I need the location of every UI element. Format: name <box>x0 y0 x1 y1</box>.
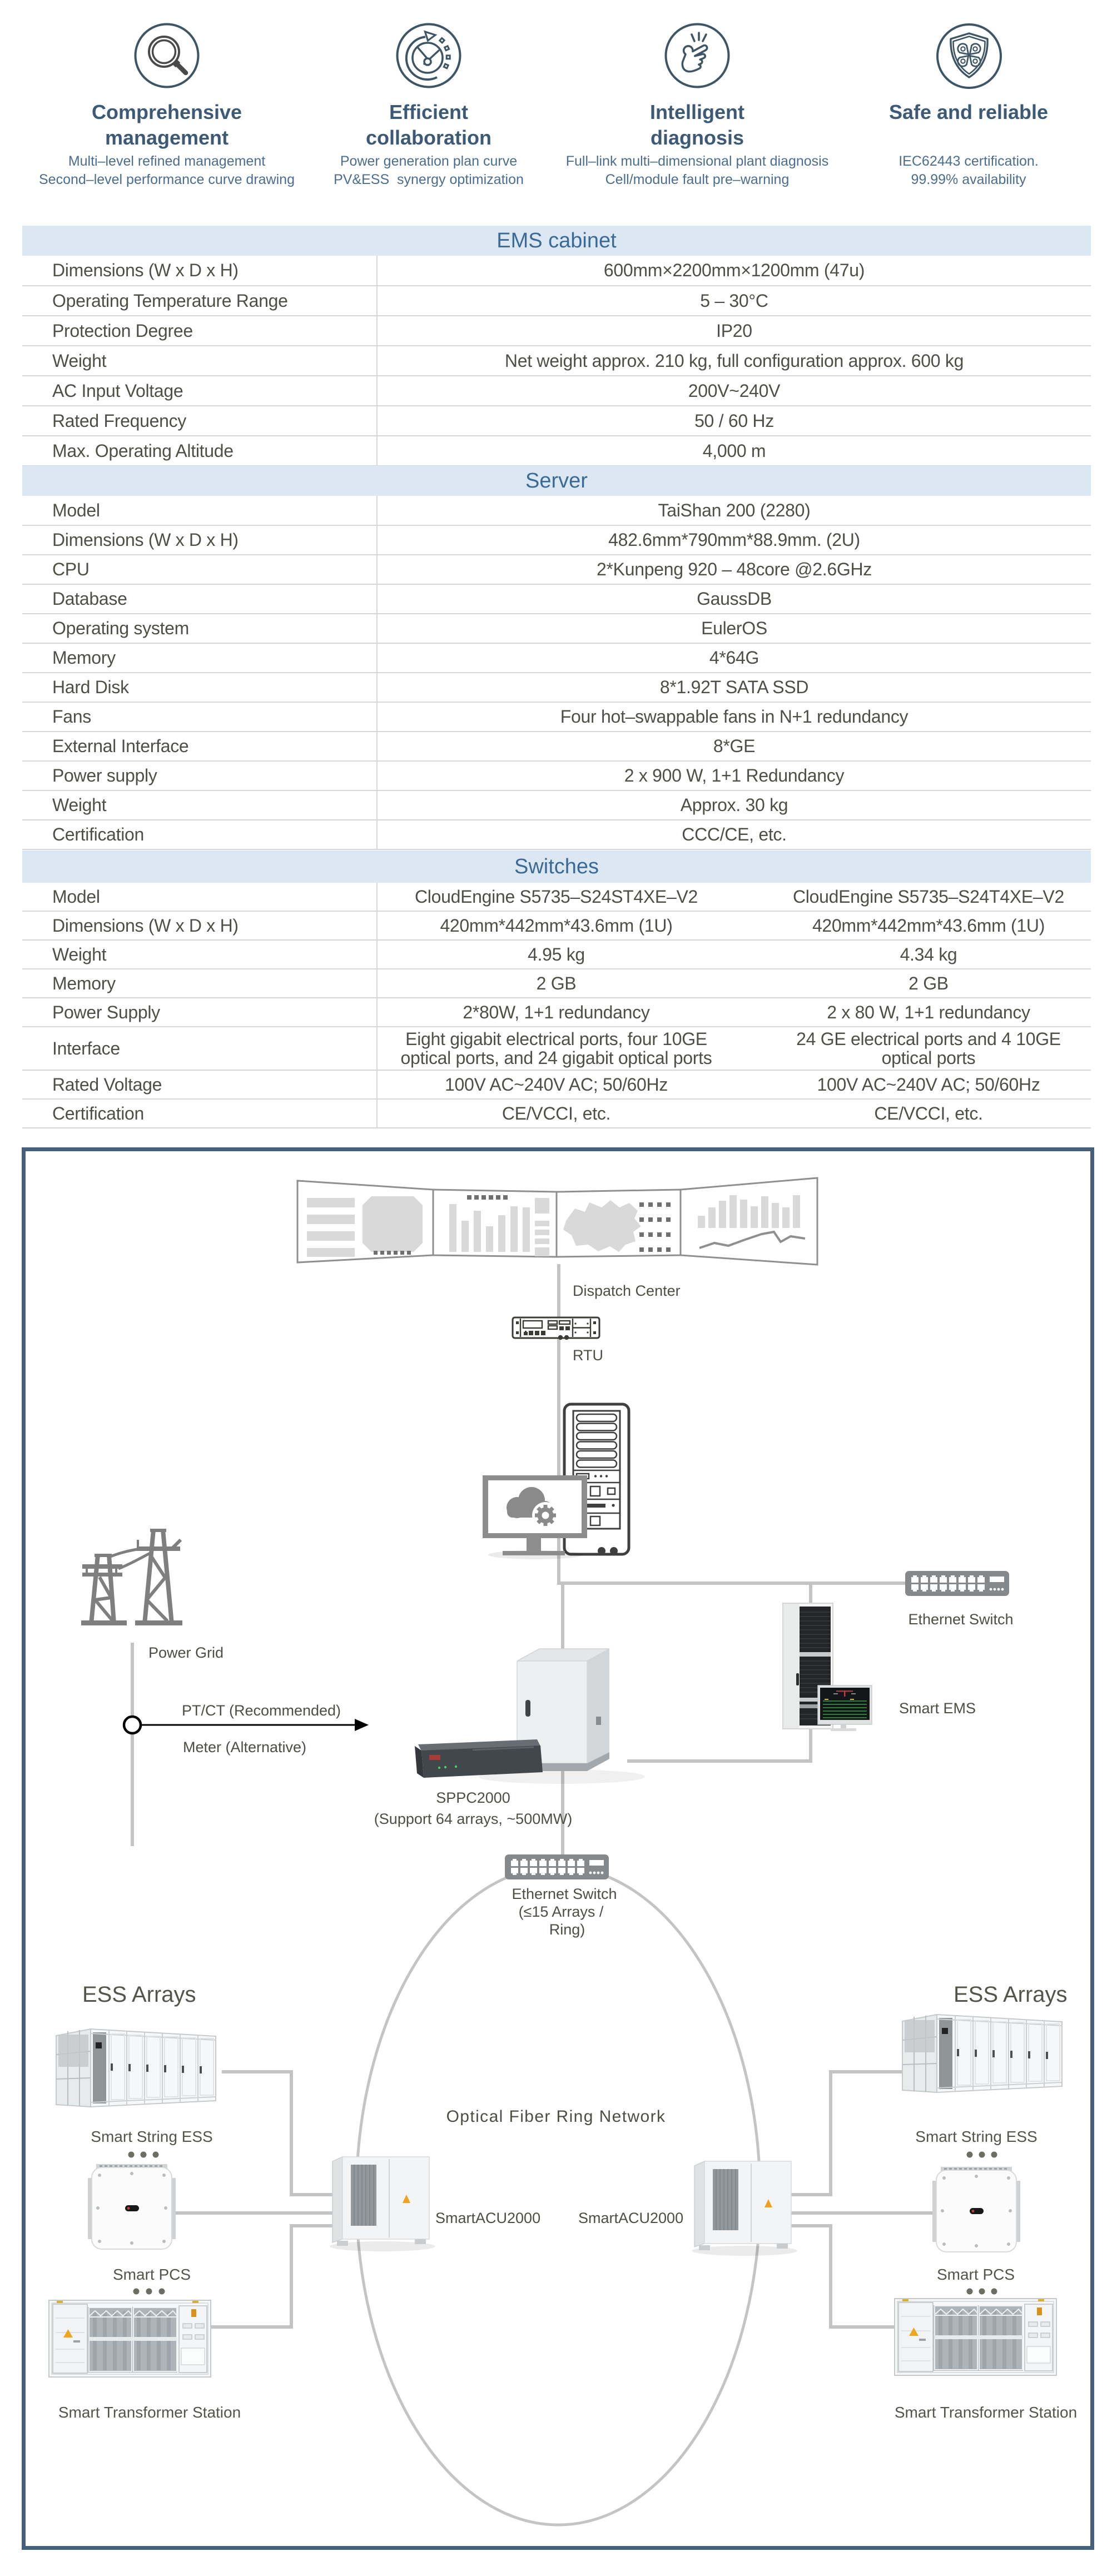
svg-text:Meter (Alternative): Meter (Alternative) <box>183 1739 306 1756</box>
svg-text:SmartACU2000: SmartACU2000 <box>435 2210 540 2226</box>
svg-text:Smart EMS: Smart EMS <box>899 1700 976 1717</box>
svg-text:ESS Arrays: ESS Arrays <box>954 1982 1068 2007</box>
svg-text:Ring): Ring) <box>549 1921 585 1938</box>
svg-text:Optical Fiber Ring Network: Optical Fiber Ring Network <box>446 2107 666 2126</box>
svg-text:Smart String ESS: Smart String ESS <box>91 2128 212 2145</box>
svg-text:Smart PCS: Smart PCS <box>113 2266 191 2283</box>
svg-text:Smart PCS: Smart PCS <box>937 2266 1015 2283</box>
svg-text:Smart Transformer Station: Smart Transformer Station <box>58 2404 241 2421</box>
svg-text:PT/CT (Recommended): PT/CT (Recommended) <box>182 1702 341 1719</box>
svg-text:SPPC2000: SPPC2000 <box>436 1789 510 1806</box>
svg-text:Ethernet Switch: Ethernet Switch <box>908 1611 1013 1628</box>
svg-text:Smart Transformer Station: Smart Transformer Station <box>895 2404 1077 2421</box>
svg-text:ESS Arrays: ESS Arrays <box>82 1982 196 2007</box>
svg-text:SmartACU2000: SmartACU2000 <box>578 2210 683 2226</box>
svg-text:Power Grid: Power Grid <box>148 1644 224 1661</box>
svg-text:Smart String ESS: Smart String ESS <box>915 2128 1037 2145</box>
svg-text:(≤15 Arrays /: (≤15 Arrays / <box>519 1903 604 1920</box>
svg-text:(Support 64 arrays, ~500MW): (Support 64 arrays, ~500MW) <box>374 1811 572 1827</box>
svg-text:Ethernet Switch: Ethernet Switch <box>512 1886 617 1902</box>
svg-text:RTU: RTU <box>573 1347 603 1364</box>
svg-text:Dispatch Center: Dispatch Center <box>573 1282 681 1299</box>
